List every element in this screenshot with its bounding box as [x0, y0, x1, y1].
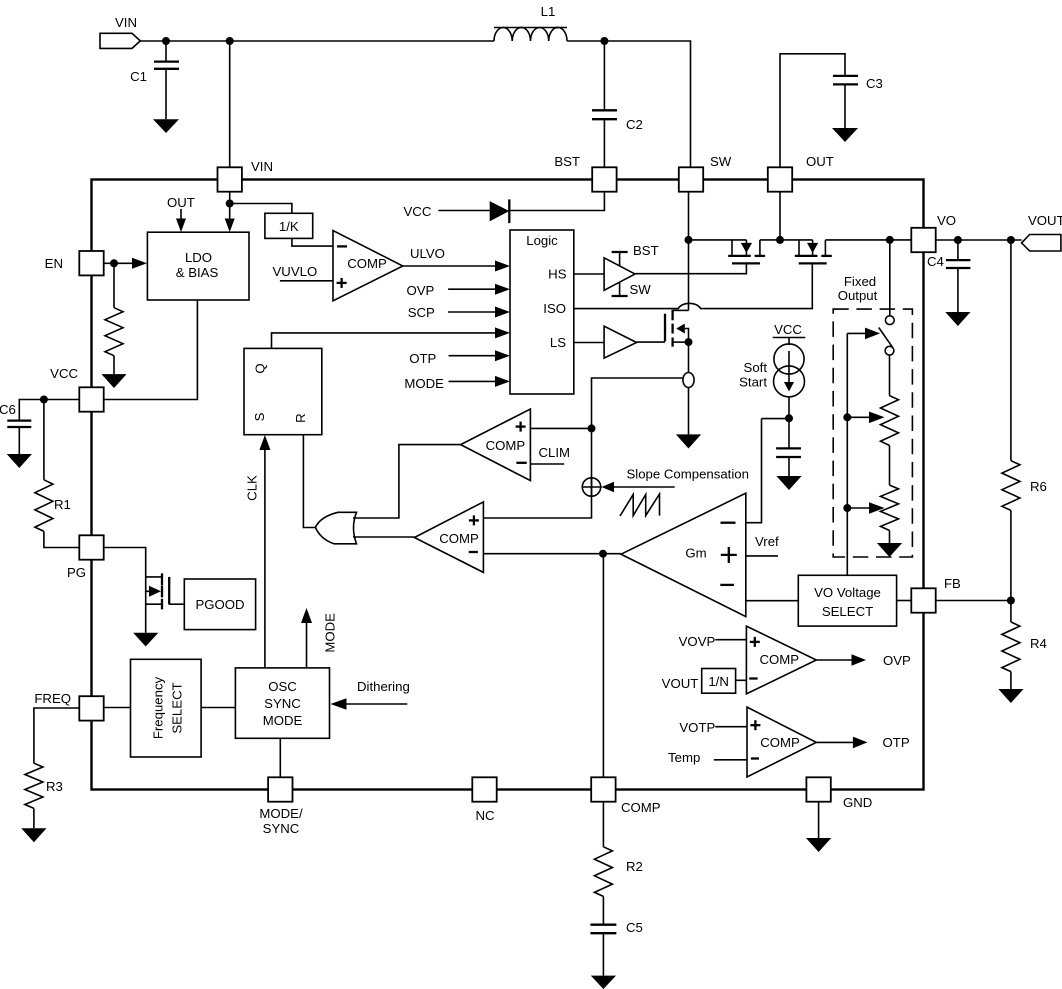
svg-text:1/K: 1/K: [279, 219, 299, 234]
svg-text:Q: Q: [253, 363, 268, 373]
svg-text:Fixed: Fixed: [844, 274, 876, 289]
svg-text:SW: SW: [710, 154, 732, 169]
svg-text:CLK: CLK: [245, 475, 260, 501]
svg-text:LS: LS: [550, 335, 566, 350]
svg-text:COMP: COMP: [439, 531, 479, 546]
svg-text:SELECT: SELECT: [170, 682, 185, 733]
svg-text:VOTP: VOTP: [679, 720, 715, 735]
svg-text:SELECT: SELECT: [822, 604, 873, 619]
svg-text:R1: R1: [54, 497, 71, 512]
svg-text:OTP: OTP: [409, 351, 436, 366]
svg-text:COMP: COMP: [486, 438, 526, 453]
svg-text:Gm: Gm: [685, 546, 706, 561]
svg-text:R: R: [293, 413, 308, 423]
svg-text:NC: NC: [475, 808, 495, 823]
svg-text:Dithering: Dithering: [357, 679, 410, 694]
svg-text:SW: SW: [630, 282, 652, 297]
svg-text:SYNC: SYNC: [263, 821, 300, 836]
svg-text:Start: Start: [739, 375, 767, 390]
svg-text:C1: C1: [130, 69, 147, 84]
svg-text:C3: C3: [866, 76, 883, 91]
svg-text:R3: R3: [46, 779, 63, 794]
svg-text:Soft: Soft: [744, 360, 768, 375]
svg-text:Vref: Vref: [755, 534, 779, 549]
svg-text:FB: FB: [944, 576, 961, 591]
svg-text:PG: PG: [67, 565, 86, 580]
svg-text:Temp: Temp: [668, 750, 700, 765]
svg-text:MODE/: MODE/: [259, 806, 303, 821]
svg-text:R4: R4: [1030, 636, 1047, 651]
svg-text:VOUT: VOUT: [662, 676, 699, 691]
svg-text:HS: HS: [548, 267, 567, 282]
svg-text:L1: L1: [541, 4, 556, 19]
svg-text:MODE: MODE: [322, 613, 337, 653]
svg-text:COMP: COMP: [760, 735, 800, 750]
svg-text:OUT: OUT: [167, 195, 195, 210]
svg-text:VIN: VIN: [115, 15, 137, 30]
svg-text:CLIM: CLIM: [539, 445, 571, 460]
svg-text:EN: EN: [45, 256, 63, 271]
svg-text:Logic: Logic: [526, 233, 558, 248]
svg-text:C4: C4: [927, 254, 944, 269]
svg-text:Slope Compensation: Slope Compensation: [627, 467, 749, 482]
svg-text:OVP: OVP: [883, 653, 911, 668]
svg-text:VCC: VCC: [774, 322, 802, 337]
svg-text:C2: C2: [626, 117, 643, 132]
svg-text:OTP: OTP: [883, 735, 910, 750]
svg-text:R6: R6: [1030, 479, 1047, 494]
svg-text:SCP: SCP: [408, 305, 435, 320]
svg-text:GND: GND: [843, 795, 872, 810]
svg-text:C6: C6: [0, 402, 16, 417]
svg-text:VOVP: VOVP: [679, 634, 716, 649]
svg-text:MODE: MODE: [404, 376, 444, 391]
svg-text:1/N: 1/N: [708, 674, 729, 689]
svg-text:SYNC: SYNC: [264, 696, 301, 711]
svg-text:S: S: [252, 412, 267, 421]
svg-text:R2: R2: [626, 859, 643, 874]
svg-text:FREQ: FREQ: [34, 691, 71, 706]
svg-text:VUVLO: VUVLO: [273, 264, 318, 279]
svg-text:VIN: VIN: [251, 159, 273, 174]
svg-text:VO Voltage: VO Voltage: [814, 585, 881, 600]
svg-text:ULVO: ULVO: [410, 246, 445, 261]
svg-text:Frequency: Frequency: [151, 676, 166, 739]
svg-text:LDO: LDO: [185, 250, 212, 265]
svg-text:BST: BST: [554, 154, 580, 169]
svg-text:OVP: OVP: [407, 283, 435, 298]
svg-text:& BIAS: & BIAS: [176, 265, 219, 280]
svg-text:PGOOD: PGOOD: [195, 597, 244, 612]
svg-text:OSC: OSC: [268, 679, 297, 694]
svg-text:COMP: COMP: [347, 256, 387, 271]
svg-text:COMP: COMP: [621, 800, 661, 815]
svg-text:OUT: OUT: [806, 154, 834, 169]
svg-text:VCC: VCC: [404, 204, 432, 219]
svg-text:COMP: COMP: [760, 652, 800, 667]
svg-text:ISO: ISO: [543, 301, 566, 316]
svg-text:VO: VO: [937, 213, 956, 228]
svg-text:MODE: MODE: [263, 713, 303, 728]
svg-text:VCC: VCC: [50, 366, 78, 381]
svg-text:BST: BST: [633, 243, 659, 258]
svg-text:VOUT: VOUT: [1028, 213, 1062, 228]
svg-text:Output: Output: [838, 288, 878, 303]
svg-text:C5: C5: [626, 920, 643, 935]
